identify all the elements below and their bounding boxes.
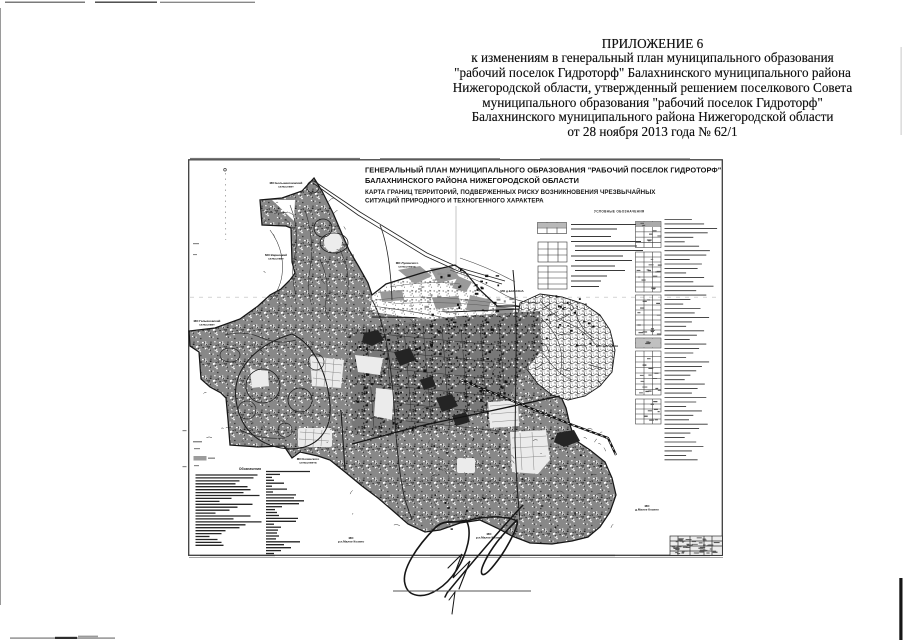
svg-text:р.п.Малое Козино: р.п.Малое Козино	[338, 540, 364, 544]
svg-text:сельсовет: сельсовет	[268, 257, 284, 261]
svg-text:МО д.БАЛАХНА: МО д.БАЛАХНА	[500, 289, 524, 293]
svg-text:УСЛОВНЫЕ ОБОЗНАЧЕНИЯ: УСЛОВНЫЕ ОБОЗНАЧЕНИЯ	[594, 210, 645, 214]
svg-text:КАРТА ГРАНИЦ ТЕРРИТОРИЙ, ПОДВЕ: КАРТА ГРАНИЦ ТЕРРИТОРИЙ, ПОДВЕРЖЕННЫХ РИ…	[365, 188, 656, 196]
svg-text:сельсовета: сельсовета	[398, 265, 415, 269]
svg-text:р.п.Малое Козино: р.п.Малое Козино	[476, 536, 502, 540]
svg-text:Обозначения: Обозначения	[239, 467, 261, 471]
svg-text:сельсовет: сельсовет	[199, 323, 215, 327]
svg-text:БАЛАХНИНСКОГО РАЙОНА НИЖЕГОРОД: БАЛАХНИНСКОГО РАЙОНА НИЖЕГОРОДСКОЙ ОБЛАС…	[365, 176, 579, 185]
svg-text:МО г.БАЛАХНА: МО г.БАЛАХНА	[596, 344, 619, 348]
svg-text:СИТУАЦИЙ ПРИРОДНОГО И ТЕХНОГЕН: СИТУАЦИЙ ПРИРОДНОГО И ТЕХНОГЕННОГО ХАРАК…	[365, 197, 544, 205]
svg-text:д.Малое Козино: д.Малое Козино	[635, 508, 659, 512]
svg-text:сельсовета: сельсовета	[299, 461, 316, 465]
svg-text:сельсовет: сельсовет	[278, 185, 294, 189]
svg-text:ГЕНЕРАЛЬНЫЙ ПЛАН МУНИЦИПАЛЬНОГ: ГЕНЕРАЛЬНЫЙ ПЛАН МУНИЦИПАЛЬНОГО ОБРАЗОВА…	[365, 165, 722, 174]
